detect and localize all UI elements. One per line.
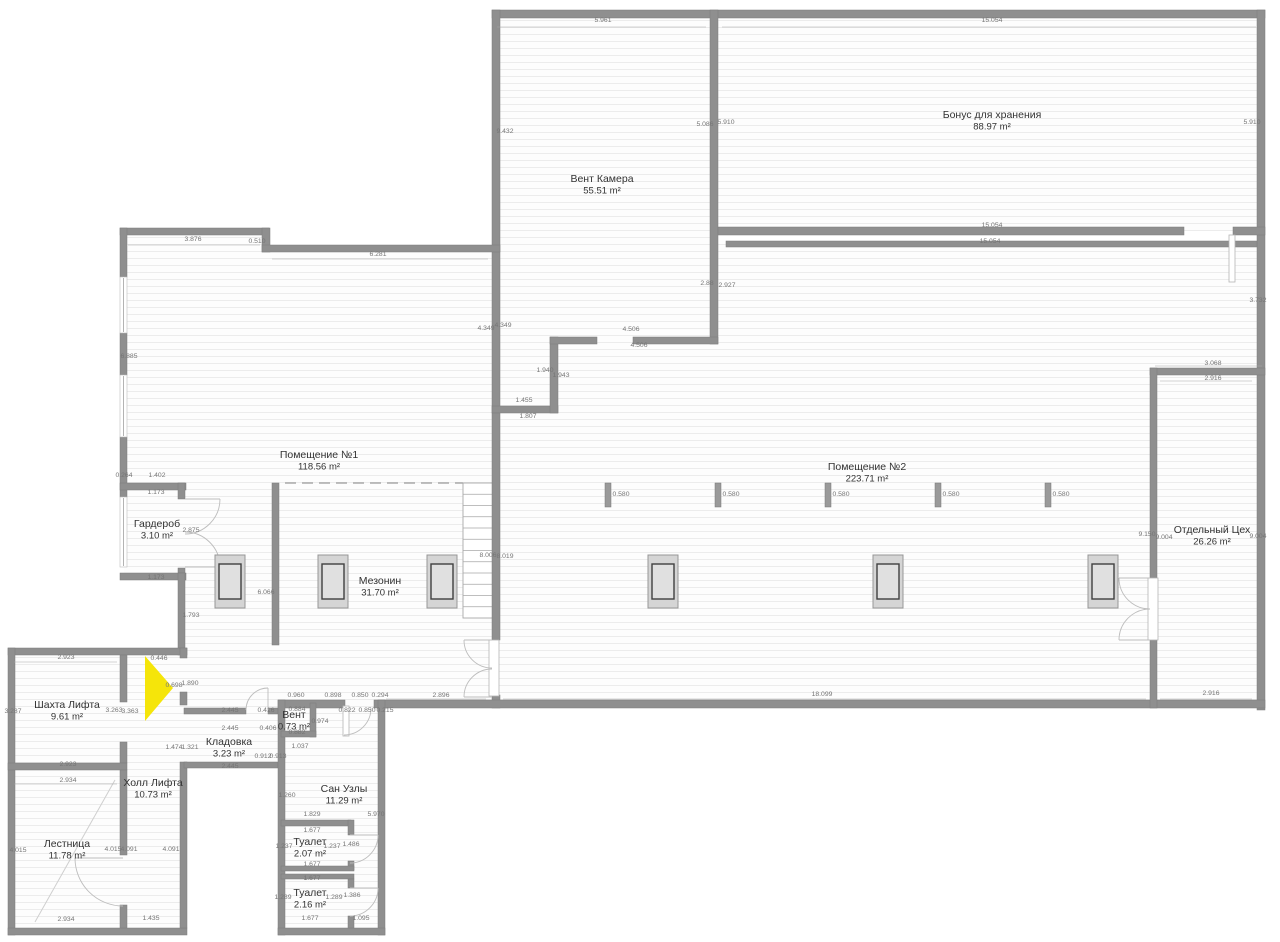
pillar	[1045, 483, 1051, 507]
room-area: 11.78 m²	[49, 851, 86, 862]
pillar-dimension-label: 0.580	[722, 491, 739, 498]
dimension-label: 0.215	[376, 707, 393, 714]
dimension-label: 2.916	[1202, 690, 1219, 697]
dimension-label: 1.173	[147, 489, 164, 496]
room-name: Лестница	[44, 838, 90, 850]
floor-area	[553, 341, 718, 704]
dimension-label: 4.091	[162, 846, 179, 853]
pillar	[935, 483, 941, 507]
room-name: Помещение №1	[280, 449, 358, 461]
dimension-label: 9.432	[496, 128, 513, 135]
dimension-label: 5.910	[1243, 119, 1260, 126]
wall	[120, 742, 127, 763]
wall	[1257, 10, 1265, 710]
door-panel	[1229, 235, 1235, 282]
dimension-label: 2.923	[59, 761, 76, 768]
wall	[492, 413, 500, 640]
dimension-label: 3.287	[4, 708, 21, 715]
dimension-label: 2.916	[1204, 375, 1221, 382]
dimension-label: 1.095	[352, 915, 369, 922]
wall	[718, 227, 1184, 235]
room-name: Шахта Лифта	[34, 699, 100, 711]
dimension-label: 8.019	[496, 553, 513, 560]
column-footing-inner	[322, 564, 344, 599]
dimension-label: 0.850	[351, 692, 368, 699]
dimension-label: 9.004	[1155, 534, 1172, 541]
wall	[120, 228, 269, 235]
wall	[180, 648, 187, 658]
dimension-label: 2.88	[700, 280, 713, 287]
dimension-label: 1.677	[303, 827, 320, 834]
wall	[348, 879, 354, 888]
column-footing-inner	[431, 564, 453, 599]
dimension-label: 1.890	[181, 680, 198, 687]
room-name: Бонус для хранения	[943, 109, 1042, 121]
dimension-label: 1.402	[148, 472, 165, 479]
dimension-label: 0.913	[269, 753, 286, 760]
room-label-san-uzly: Сан Узлы11.29 m²	[321, 783, 368, 807]
dimension-label: 1.321	[181, 744, 198, 751]
floor-area	[268, 249, 496, 704]
room-name: Мезонин	[359, 575, 402, 587]
dimension-label: 0.698	[165, 682, 182, 689]
dimension-label: 8.006	[479, 552, 496, 559]
dimension-label: 6.066	[257, 589, 274, 596]
room-area: 3.23 m²	[213, 749, 245, 760]
dimension-label: 0.294	[371, 692, 388, 699]
room-name: Отдельный Цех	[1174, 524, 1251, 536]
windows-layer	[120, 277, 127, 567]
dimension-label: 0.822	[338, 707, 355, 714]
dimension-label: 1.435	[142, 915, 159, 922]
dimension-label: 4.349	[477, 325, 494, 332]
room-name: Кладовка	[206, 736, 252, 748]
dimension-label: 1.486	[342, 841, 359, 848]
floor-plan-svg: 0.5800.5800.5800.5800.580 5.96115.0549.4…	[0, 0, 1280, 942]
floors-layer	[12, 14, 1261, 932]
wall	[272, 483, 279, 645]
pillar	[715, 483, 721, 507]
room-label-lestnica: Лестница11.78 m²	[44, 838, 90, 862]
dimension-label: 1.173	[147, 574, 164, 581]
column-footing-inner	[652, 564, 674, 599]
dimension-label: 1.677	[303, 861, 320, 868]
dimension-label: 1.474	[165, 744, 182, 751]
wall	[1233, 227, 1265, 235]
dimension-label: 4.091	[120, 846, 137, 853]
dimension-label: 4.015	[9, 847, 26, 854]
dimension-label: 9.150	[1138, 531, 1155, 538]
dimension-label: 2.934	[57, 916, 74, 923]
dimension-label: 15.054	[980, 238, 1001, 245]
dimension-label: 2.445	[221, 725, 238, 732]
room-label-tualet-2: Туалет2.16 m²	[293, 887, 326, 911]
wall	[120, 228, 127, 277]
dimension-label: 2.875	[182, 527, 199, 534]
column-footing-inner	[219, 564, 241, 599]
wall	[278, 928, 385, 935]
dimension-label: 1.829	[303, 811, 320, 818]
wall	[348, 820, 354, 835]
pillar-dimension-label: 0.580	[1052, 491, 1069, 498]
wall	[8, 648, 187, 655]
dimension-label: 1.289	[325, 894, 342, 901]
wall	[178, 483, 185, 499]
room-area: 3.10 m²	[141, 531, 173, 542]
dimension-label: 15.054	[982, 222, 1003, 229]
dimension-label: 5.970	[367, 811, 384, 818]
room-name: Сан Узлы	[321, 783, 368, 795]
dimension-label: 3.876	[184, 236, 201, 243]
dimension-label: 0.510	[248, 238, 265, 245]
dimension-label: 0.406	[259, 725, 276, 732]
wall	[281, 820, 351, 826]
wall	[1150, 368, 1157, 578]
dimension-label: 4.506	[630, 342, 647, 349]
dimension-label: 3.263	[105, 707, 122, 714]
room-area: 10.73 m²	[134, 790, 172, 801]
dimension-label: 0.850	[358, 707, 375, 714]
wall	[120, 655, 127, 702]
dimension-label: 1.677	[303, 875, 320, 882]
dimension-label: 1.940	[536, 367, 553, 374]
dimension-label: 4.349	[494, 322, 511, 329]
dimension-label: 1.237	[275, 843, 292, 850]
column-footing-inner	[877, 564, 899, 599]
wall	[180, 692, 187, 705]
pillar-dimension-label: 0.580	[612, 491, 629, 498]
dimension-label: 3.363	[121, 708, 138, 715]
dimension-label: 5.086	[696, 121, 713, 128]
dimension-label: 0.974	[311, 718, 328, 725]
room-name: Помещение №2	[828, 461, 906, 473]
dimension-label: 4.506	[622, 326, 639, 333]
room-area: 31.70 m²	[361, 588, 399, 599]
dimension-label: 2.923	[57, 654, 74, 661]
dimension-label: 0.416	[257, 707, 274, 714]
dimension-label: 0.898	[324, 692, 341, 699]
dimension-label: 1.793	[182, 612, 199, 619]
room-name: Холл Лифта	[123, 777, 183, 789]
dimension-label: 0.264	[115, 472, 132, 479]
dimension-label: 0.446	[150, 655, 167, 662]
dimension-label: 3.732	[1249, 297, 1266, 304]
wall	[550, 337, 597, 344]
wall	[8, 928, 187, 935]
dimension-label: 1.943	[552, 372, 569, 379]
room-name: Туалет	[293, 887, 326, 899]
dimension-label: 4.015	[104, 846, 121, 853]
pillar-dimension-label: 0.580	[942, 491, 959, 498]
dimension-label: 15.054	[982, 17, 1003, 24]
dimension-label: 1.289	[274, 894, 291, 901]
wall	[120, 905, 127, 928]
room-name: Гардероб	[134, 518, 180, 530]
room-area: 2.16 m²	[294, 900, 326, 911]
dimension-label: 1.455	[515, 397, 532, 404]
room-area: 11.29 m²	[326, 796, 363, 807]
room-label-mezonin: Мезонин31.70 m²	[359, 575, 402, 599]
dimension-label: 5.961	[594, 17, 611, 24]
pillar-dimension-label: 0.580	[832, 491, 849, 498]
room-label-tualet-1: Туалет2.07 m²	[293, 836, 326, 860]
room-name: Туалет	[293, 836, 326, 848]
room-area: 2.07 m²	[294, 849, 326, 860]
wall	[374, 700, 1265, 708]
room-area: 55.51 m²	[583, 186, 621, 197]
dimension-label: 1.386	[343, 892, 360, 899]
dimension-label: 2.896	[432, 692, 449, 699]
pillar	[605, 483, 611, 507]
column-footing-inner	[1092, 564, 1114, 599]
room-area: 9.61 m²	[51, 712, 83, 723]
dimension-label: 2.927	[718, 282, 735, 289]
dimension-label: 9.004	[1249, 533, 1266, 540]
dimension-label: 1.677	[301, 915, 318, 922]
room-area: 0.73 m²	[278, 722, 310, 733]
wall	[492, 406, 558, 413]
wall	[1150, 368, 1265, 375]
dimension-label: 0.960	[287, 692, 304, 699]
dimension-label: 6.885	[120, 353, 137, 360]
floor-plan-canvas: 0.5800.5800.5800.5800.580 5.96115.0549.4…	[0, 0, 1280, 942]
dimension-label: 1.260	[278, 792, 295, 799]
floor-area	[715, 244, 1261, 704]
room-name: Вент	[282, 709, 306, 721]
dimension-label: 1.037	[291, 743, 308, 750]
room-name: Вент Камера	[570, 173, 633, 185]
room-area: 223.71 m²	[846, 474, 889, 485]
dimension-label: 1.807	[519, 413, 536, 420]
dimension-label: 6.281	[369, 251, 386, 258]
dimension-label: 2.934	[59, 777, 76, 784]
dimension-label: 2.445	[221, 763, 238, 770]
wall	[710, 10, 718, 344]
dimension-label: 5.910	[717, 119, 734, 126]
pillar	[825, 483, 831, 507]
wall	[492, 10, 500, 413]
room-label-vent: Вент0.73 m²	[278, 709, 310, 733]
dimension-label: 2.445	[221, 707, 238, 714]
room-area: 118.56 m²	[298, 462, 340, 473]
wall	[1150, 640, 1157, 708]
dimension-label: 18.099	[812, 691, 833, 698]
dimension-label: 3.068	[1204, 360, 1221, 367]
room-area: 88.97 m²	[973, 122, 1011, 133]
wall	[8, 648, 15, 935]
room-area: 26.26 m²	[1193, 537, 1231, 548]
